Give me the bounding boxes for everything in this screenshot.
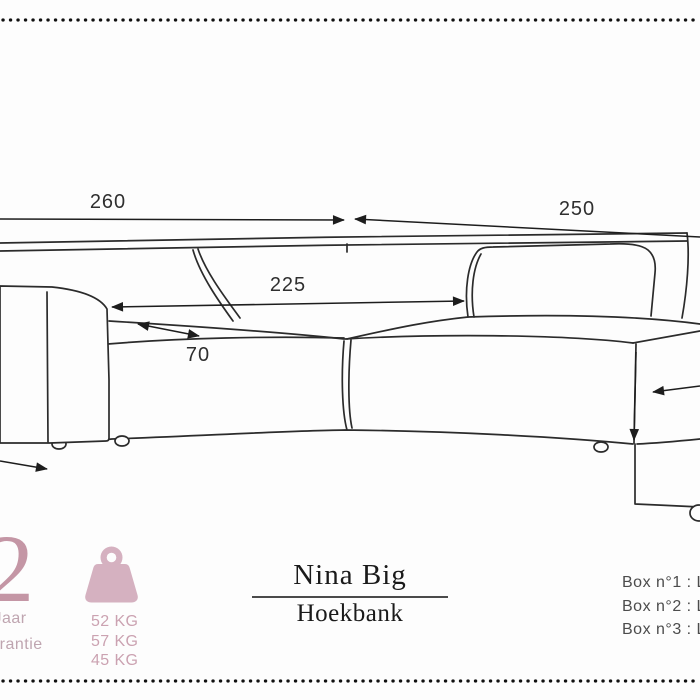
left-seat-front-edge [108,337,344,344]
box-dimension-list: Box n°1 : L 1 Box n°2 : L 1 Box n°3 : L … [622,571,700,642]
left-seat-back-edge [109,321,344,339]
dim-70-label: 70 [186,344,210,366]
product-name: Nina Big [240,560,460,590]
chaise-front-top-edge [345,336,633,343]
weight-values: 52 KG 57 KG 45 KG [91,612,138,671]
right-back-cushion-seam [472,254,481,317]
sofa-outline [0,233,700,521]
dim-arrow-right-face [653,386,700,392]
back-cushion-seam-inner [198,249,240,318]
dim-arrow-bottom-left [0,461,47,469]
product-title-block: Nina Big Hoekbank [240,560,460,627]
dim-260-label: 260 [90,191,126,213]
dim-225-label: 225 [270,274,306,296]
box-line-2: Box n°2 : L 1 [622,595,700,619]
chaise-forward-panel [635,444,700,507]
chaise-right-face-top-edge [633,331,700,343]
weight-value: 52 KG [91,612,138,632]
product-subtitle: Hoekbank [240,601,460,627]
left-armrest-crease [47,292,48,442]
weight-icon [83,545,140,605]
sofa-foot-mid [115,436,129,446]
right-back-cushion [466,244,655,317]
dim-260-line [0,219,344,220]
sofa-foot-chaise-right [690,505,700,521]
corner-seam-right [349,340,352,428]
sofa-foot-chaise [594,442,608,452]
box-line-3: Box n°3 : L 1 [622,618,700,642]
backrest-rail-end-cap [682,233,688,318]
dim-arrow-corner-height [634,352,636,440]
box-line-1: Box n°1 : L 1 [622,571,700,595]
dim-250-label: 250 [559,198,595,220]
dim-225-line [112,301,464,307]
title-divider [252,596,448,598]
left-armrest [0,286,109,443]
weight-value: 57 KG [91,632,138,652]
warranty-years: 2 [0,521,34,617]
warranty-text: Jaar Garantie [0,606,80,658]
back-cushion-seam-outer [193,250,233,321]
warranty-label: Garantie [0,632,80,658]
warranty-unit: Jaar [0,606,80,632]
weight-value: 45 KG [91,651,138,671]
corner-seam-left [342,341,347,430]
chaise-right-face-bottom-edge [637,439,700,444]
backrest-rail-bottom-line [0,241,687,251]
